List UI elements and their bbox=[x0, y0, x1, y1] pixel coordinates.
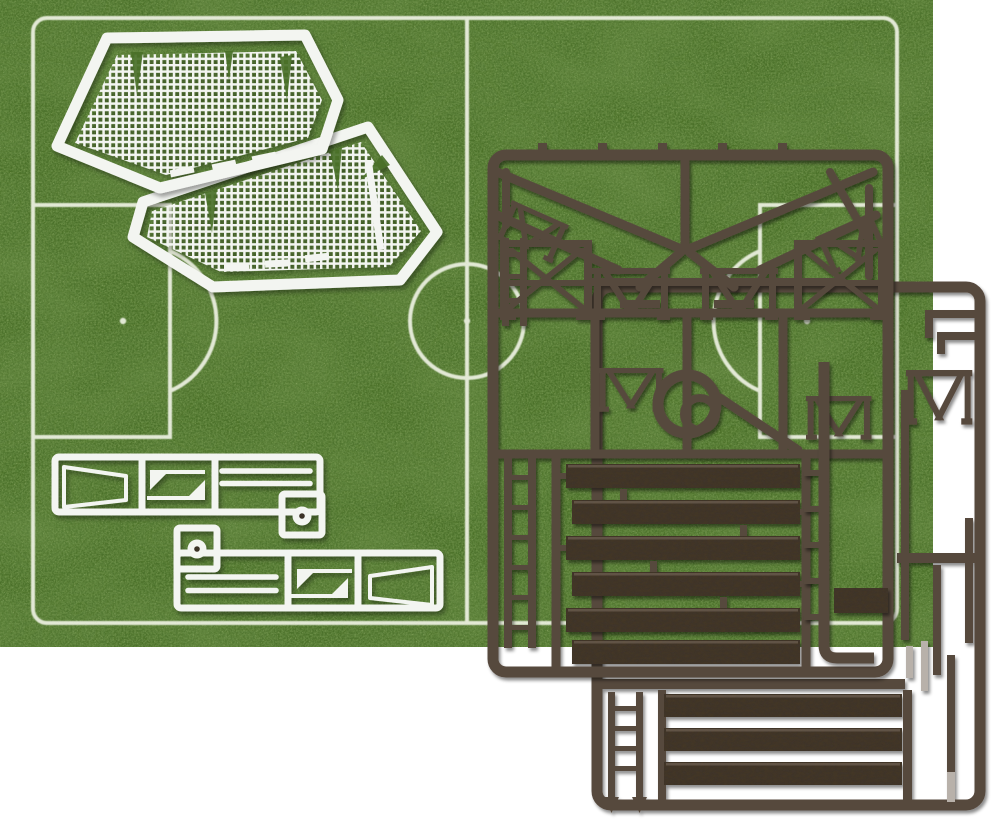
rail-part bbox=[925, 310, 980, 318]
sprue-gate bbox=[598, 143, 607, 152]
post-strip bbox=[965, 518, 973, 643]
light-post bbox=[921, 641, 928, 691]
sprue-gate bbox=[740, 525, 747, 537]
disc-center-hole bbox=[194, 546, 200, 552]
ladder-part bbox=[604, 692, 647, 813]
terrace-planks-rear bbox=[664, 694, 902, 785]
plank-rail bbox=[903, 690, 912, 802]
terrace-plank bbox=[572, 572, 800, 596]
terrace-plank bbox=[572, 640, 800, 664]
post-strip bbox=[947, 655, 955, 775]
terrace-plank bbox=[566, 608, 800, 632]
terrace-plank bbox=[566, 536, 800, 560]
post-strip bbox=[901, 390, 909, 640]
runner bbox=[597, 679, 905, 689]
disc-center-hole bbox=[299, 513, 305, 519]
photo-canvas bbox=[0, 0, 1000, 833]
light-post bbox=[906, 646, 913, 678]
light-post bbox=[947, 772, 955, 802]
sprue-gate bbox=[778, 143, 787, 152]
sprue-gate bbox=[720, 597, 727, 609]
rail-hook bbox=[937, 332, 945, 354]
sprue-gate bbox=[658, 143, 667, 152]
sprue-gate bbox=[620, 489, 627, 501]
rail-hook bbox=[925, 310, 933, 338]
terrace-plank bbox=[566, 464, 800, 488]
post-strip bbox=[933, 565, 941, 675]
sprue-gate bbox=[650, 561, 657, 573]
kit-photo bbox=[0, 0, 1000, 833]
terrace-plank bbox=[834, 588, 888, 613]
sprue-gate bbox=[718, 143, 727, 152]
sprue-gate bbox=[538, 143, 547, 152]
terrace-plank bbox=[572, 500, 800, 524]
